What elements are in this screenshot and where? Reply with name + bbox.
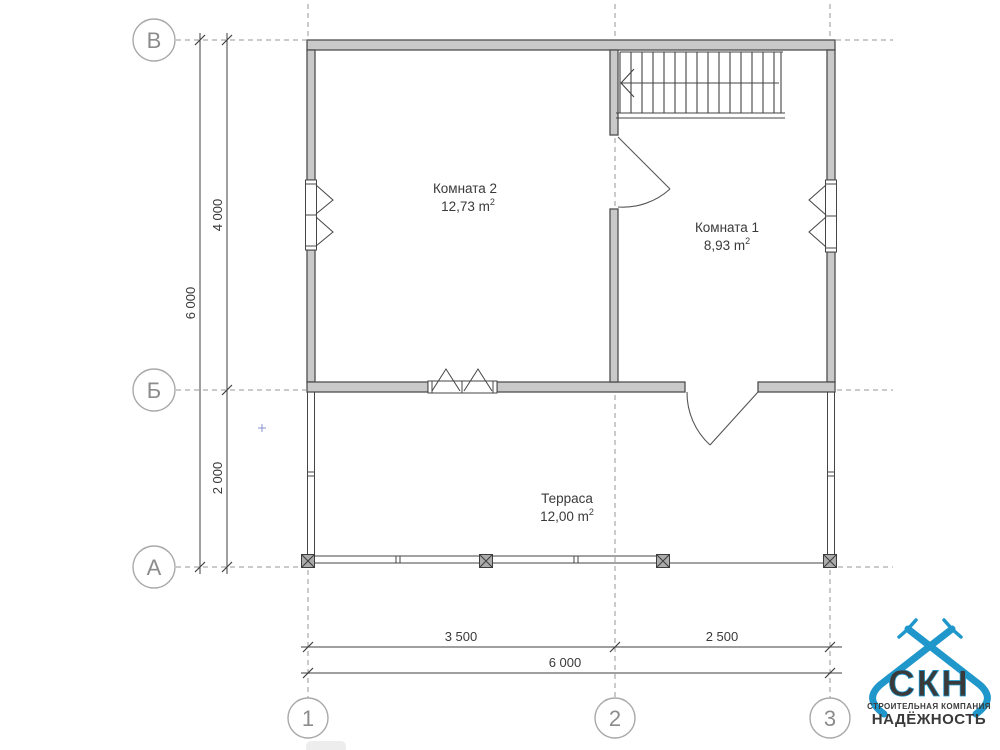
dim-bottom-total: 6 000 <box>549 655 582 670</box>
stair-bottom-stringer <box>616 113 785 118</box>
post-icon <box>657 555 670 568</box>
floor-plan-drawing: 6 000 4 000 2 000 3 500 2 500 6 000 В Б … <box>0 0 1000 750</box>
walls <box>307 40 835 392</box>
logo-name-text: НАДЁЖНОСТЬ <box>872 711 986 728</box>
door-interior <box>618 137 670 207</box>
grid-lines <box>176 4 893 698</box>
room-area-komnata-1: 8,93 m2 <box>704 236 750 253</box>
railing-left <box>308 392 315 556</box>
wall-right-upper <box>827 50 835 180</box>
casement-sash-icon <box>809 185 826 247</box>
door-leaf <box>618 137 670 189</box>
doors <box>618 137 758 445</box>
axis-label-1: 1 <box>302 706 314 731</box>
stairs <box>616 52 785 118</box>
door-swing-arc <box>687 392 710 445</box>
axis-label-2: 2 <box>609 706 621 731</box>
logo-abbr-text: СКН <box>888 663 970 704</box>
room-name-terrasa: Терраса <box>541 491 593 506</box>
cad-cross-marker-icon <box>258 424 266 432</box>
dimension-labels: 6 000 4 000 2 000 3 500 2 500 6 000 <box>183 199 738 670</box>
post-icon <box>824 555 837 568</box>
wall-bottom-middle <box>497 382 685 392</box>
room-area-terrasa: 12,00 m2 <box>540 507 594 524</box>
window-right-wall <box>809 180 837 252</box>
company-logo: СКН СТРОИТЕЛЬНАЯ КОМПАНИЯ НАДЁЖНОСТЬ <box>867 620 991 728</box>
logo-tagline-text: СТРОИТЕЛЬНАЯ КОМПАНИЯ <box>867 702 991 711</box>
floor-plan-page: 6 000 4 000 2 000 3 500 2 500 6 000 В Б … <box>0 0 1000 750</box>
door-terrace <box>687 392 758 445</box>
window-left-wall <box>306 180 334 250</box>
axis-label-3: 3 <box>824 706 836 731</box>
door-swing-arc <box>618 189 670 207</box>
wall-left-upper <box>307 50 315 180</box>
terrace-railing <box>302 392 837 568</box>
room-labels: Комната 2 12,73 m2 Комната 1 8,93 m2 Тер… <box>433 181 759 524</box>
watermark-fragment <box>306 741 346 750</box>
railing-right <box>828 392 835 556</box>
dim-bottom-left: 3 500 <box>445 629 478 644</box>
dimension-lines <box>195 33 842 678</box>
door-leaf <box>710 392 758 445</box>
windows <box>306 180 837 393</box>
wall-bottom-right <box>758 382 835 392</box>
dim-left-total: 6 000 <box>183 287 198 320</box>
window-bottom-wall <box>428 369 497 393</box>
wall-top <box>307 40 835 50</box>
room-name-komnata-2: Комната 2 <box>433 181 497 196</box>
casement-sash-icon <box>316 185 333 246</box>
axis-label-v: В <box>147 28 162 53</box>
wall-interior-upper <box>610 50 618 135</box>
wall-interior-lower <box>610 209 618 382</box>
wall-right-lower <box>827 252 835 382</box>
post-icon <box>480 555 493 568</box>
post-icon <box>302 555 315 568</box>
axis-label-b: Б <box>147 378 161 403</box>
axis-label-a: А <box>147 555 162 580</box>
dim-left-upper: 4 000 <box>210 199 225 232</box>
room-name-komnata-1: Комната 1 <box>695 220 759 235</box>
dim-left-lower: 2 000 <box>210 462 225 495</box>
dim-bottom-right: 2 500 <box>706 629 739 644</box>
axis-markers: В Б А 1 2 3 <box>133 19 850 738</box>
wall-left-lower <box>307 250 315 382</box>
room-area-komnata-2: 12,73 m2 <box>441 197 495 214</box>
wall-bottom-left <box>307 382 428 392</box>
